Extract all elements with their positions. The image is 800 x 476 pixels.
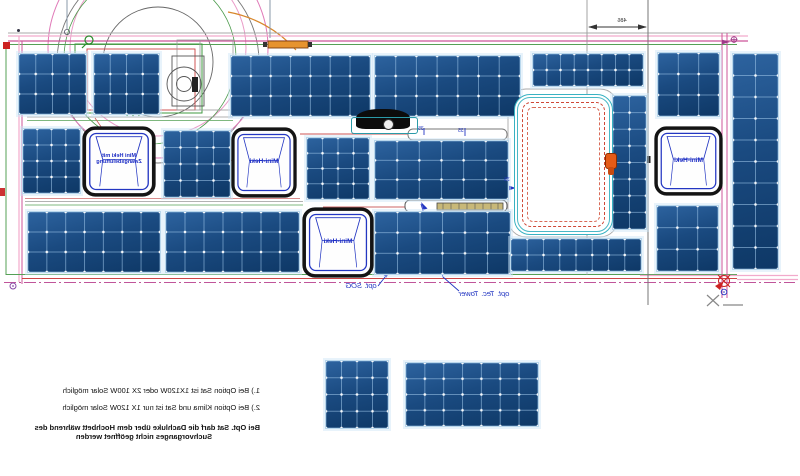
solar-panel xyxy=(163,130,231,198)
dimension-small-3: 35 xyxy=(504,177,510,183)
roof-hatch-label: Mini-Heki xyxy=(231,158,297,165)
roof-hatch-label: Mini-Heki xyxy=(654,157,723,164)
solar-panel xyxy=(532,53,644,87)
solar-panel xyxy=(325,360,389,429)
solar-panel xyxy=(405,362,539,427)
skylight-opening-dashed-inner xyxy=(527,107,600,222)
solar-panel xyxy=(612,95,647,230)
roof-hatch-label: Mini-Heki xyxy=(302,238,374,245)
solar-panel xyxy=(657,52,720,117)
solar-panel xyxy=(18,53,87,115)
valve-stem xyxy=(608,167,614,175)
footnotes: 1.) Bei Option Sat ist 1X120W oder 2X 10… xyxy=(28,386,260,448)
edge-markers xyxy=(0,42,16,289)
roof-hatch: Mini-Heki xyxy=(654,126,723,196)
solar-panel xyxy=(93,53,160,115)
signature-x xyxy=(707,295,743,306)
roof-hatch-label: Mini Heki mitZwangsbelüftung xyxy=(82,153,156,166)
dimension-small-1: 35 xyxy=(418,126,424,132)
solar-panel xyxy=(27,211,161,273)
solar-panel xyxy=(374,140,509,200)
label-opt-tec-tower: opt. Tec. Tower xyxy=(454,289,514,298)
roof-hatch: Mini-Heki xyxy=(231,127,297,198)
satellite-dish xyxy=(167,56,204,106)
solar-panel xyxy=(374,55,521,117)
skylight-hochbett xyxy=(514,94,613,235)
roof-plan-canvas: opt. SOG opt. Tec. Tower 486 35 35 35 1.… xyxy=(0,0,800,476)
note-line-3: Bei Opt. Sat darf die Dachluke über dem … xyxy=(28,423,260,432)
solar-panel xyxy=(165,211,300,273)
roof-hatch: Mini Heki mitZwangsbelüftung xyxy=(82,126,156,197)
dimension-small-2: 35 xyxy=(458,128,464,134)
roof-fan-crank-icon xyxy=(383,119,394,130)
orange-rail xyxy=(263,41,312,48)
note-line-4: Suchvorganges nicht geöffnet werden xyxy=(28,432,260,441)
solar-panel xyxy=(510,238,642,272)
dimension-value-top: 486 xyxy=(602,18,642,24)
solar-panel xyxy=(656,205,719,272)
solar-panel xyxy=(230,55,371,117)
solar-panel xyxy=(374,211,511,275)
solar-panel xyxy=(22,128,81,194)
note-line-1: 1.) Bei Option Sat ist 1X120W oder 2X 10… xyxy=(28,386,260,395)
solar-panel xyxy=(306,137,370,200)
note-line-2: 2.) Bei Option Klima und Sat ist nur 1X … xyxy=(28,403,260,412)
label-opt-sog: opt. SOG xyxy=(340,281,382,290)
roof-hatch: Mini-Heki xyxy=(302,207,374,278)
solar-panel xyxy=(732,53,779,270)
